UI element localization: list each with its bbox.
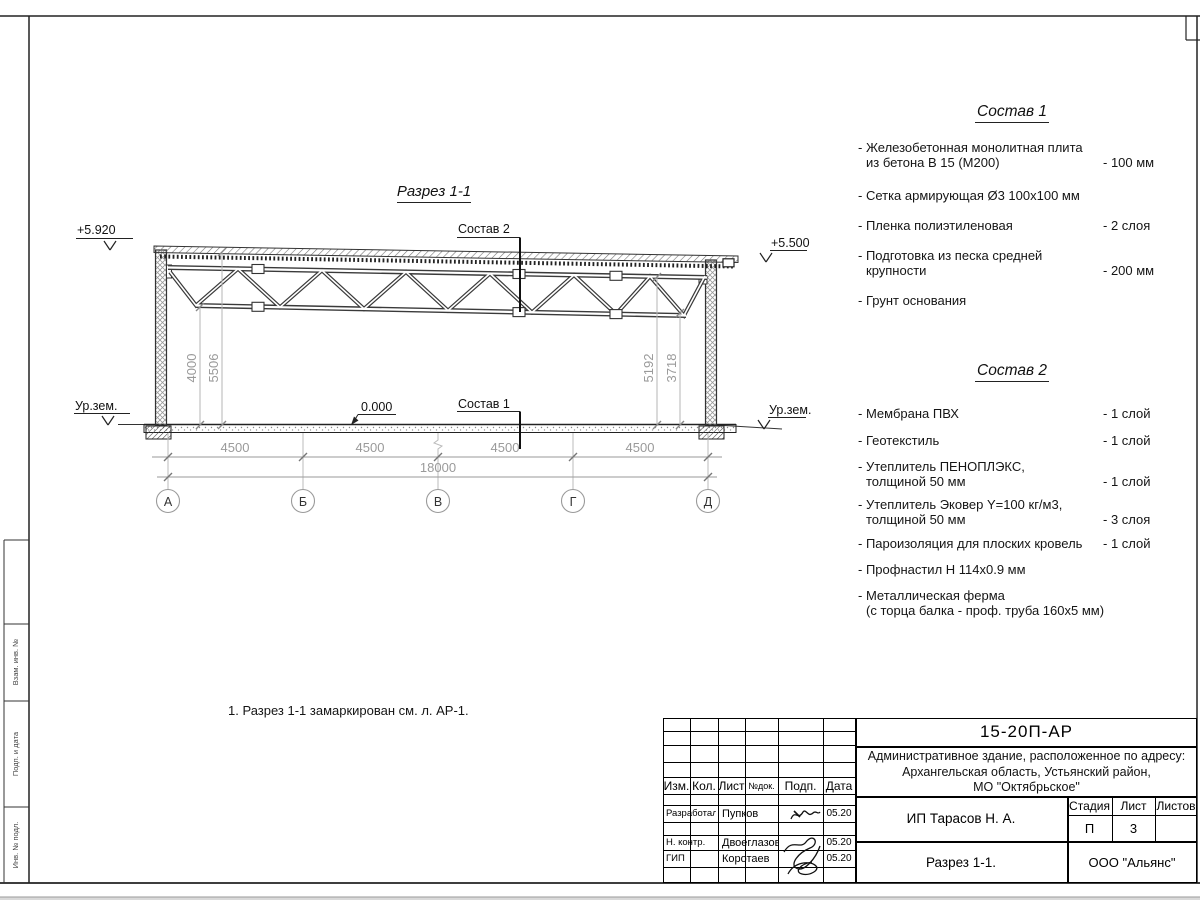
tb-col-ndok: №док. (745, 777, 778, 794)
roof-end-beam (723, 259, 734, 267)
axis-label: А (164, 495, 173, 509)
axis-label: Д (704, 495, 713, 509)
axis-label: Г (570, 495, 577, 509)
drawing-note: 1. Разрез 1-1 замаркирован см. л. АР-1. (228, 703, 469, 718)
corner-box (1186, 16, 1200, 40)
margin-label: Взам. инв. № (11, 639, 20, 685)
tb-name: Коротаев (722, 850, 778, 867)
tb-col-data: Дата (823, 777, 855, 794)
list-item: - Сетка армирующая Ø3 100х100 мм (846, 188, 1178, 203)
project-address: Административное здание, расположенное п… (856, 749, 1197, 796)
axis-bubbles: А Б В Г Д (157, 490, 720, 513)
list-item: - Пленка полиэтиленовая - 2 слоя (846, 218, 1178, 233)
dim-label-total: 18000 (420, 460, 456, 475)
tb-date: 05.20 (823, 850, 855, 867)
axis-label: В (434, 495, 442, 509)
sostav2-title: Состав 2 (846, 362, 1178, 380)
level-arrow-icon (760, 253, 772, 262)
truss (168, 265, 707, 319)
tb-date: 05.20 (823, 805, 855, 822)
stage-label: Стадия (1067, 796, 1112, 815)
level-arrow-icon (102, 416, 114, 425)
elevation-right: +5.500 (760, 236, 810, 262)
list-item: - Пароизоляция для плоских кровель - 1 с… (846, 536, 1178, 551)
ground-label: Ур.зем. (75, 399, 117, 413)
tb-name: Двоеглазов (722, 835, 778, 850)
wall-left (156, 250, 167, 425)
list-item: - Металлическая ферма (с торца балка - п… (846, 588, 1178, 618)
list-item: - Утеплитель Эковер Y=100 кг/м3, толщино… (846, 497, 1178, 527)
sheet-title: Разрез 1-1. (856, 841, 1066, 883)
client-name: ИП Тарасов Н. А. (856, 796, 1066, 841)
elevation-label: +5.500 (771, 236, 810, 250)
dim-label: 4500 (626, 440, 655, 455)
footing-right (699, 426, 724, 439)
tb-col-list: Лист (718, 777, 745, 794)
section-view: Состав 2 Состав 1 0.000 +5.920 (74, 222, 811, 513)
list-item: - Подготовка из песка средней крупности … (846, 248, 1178, 278)
level-arrow-icon (104, 241, 116, 250)
leader-label: Состав 1 (458, 397, 510, 411)
ground-label: Ур.зем. (769, 403, 811, 417)
axis-label: Б (299, 495, 307, 509)
ground-level-left: Ур.зем. (74, 399, 130, 425)
tb-col-podp: Подп. (778, 777, 823, 794)
tb-date: 05.20 (823, 835, 855, 850)
dim-label: 4500 (221, 440, 250, 455)
dim-label: 5506 (206, 354, 221, 383)
floor-slab (144, 425, 736, 433)
stage-value: П (1067, 815, 1112, 841)
footing-left (146, 426, 171, 439)
tb-role: Разработал (666, 805, 716, 822)
sheet-label: Лист (1112, 796, 1155, 815)
elevation-label: +5.920 (77, 223, 116, 237)
tb-name: Пупков (722, 805, 777, 822)
ground-level-right: Ур.зем. (758, 403, 811, 429)
tb-col-izm: Изм. (663, 777, 690, 794)
dim-label: 4500 (491, 440, 520, 455)
tb-col-kol: Кол. (690, 777, 718, 794)
margin-label: Подп. и дата (11, 731, 20, 776)
dim-label: 3718 (664, 354, 679, 383)
doc-number: 15-20П-АР (856, 718, 1197, 746)
list-item: - Железобетонная монолитная плита из бет… (846, 140, 1178, 170)
tb-role: Н. контр. (666, 835, 716, 850)
sheet-value: 3 (1112, 815, 1155, 841)
leader-label: Состав 2 (458, 222, 510, 236)
zero-label: 0.000 (361, 400, 392, 414)
list-item: - Геотекстиль - 1 слой (846, 433, 1178, 448)
signature (788, 806, 822, 824)
list-item: - Мембрана ПВХ - 1 слой (846, 406, 1178, 421)
company-name: ООО "Альянс" (1067, 841, 1197, 883)
sostav1-title: Состав 1 (846, 103, 1178, 121)
list-item: - Профнастил Н 114х0.9 мм (846, 562, 1178, 577)
zero-level-mark: 0.000 (351, 400, 396, 425)
margin-labels: Взам. инв. № Подп. и дата Инв. № подл. (11, 639, 20, 869)
sheets-label: Листов (1155, 796, 1197, 815)
margin-label: Инв. № подл. (11, 822, 20, 869)
section-title: Разрез 1-1 (388, 183, 480, 200)
list-item: - Утеплитель ПЕНОПЛЭКС, толщиной 50 мм -… (846, 459, 1178, 489)
drawing-sheet: Взам. инв. № Подп. и дата Инв. № подл. (0, 0, 1200, 900)
signature (780, 834, 826, 878)
dim-label: 4000 (184, 354, 199, 383)
elevation-left: +5.920 (76, 223, 133, 250)
leader-sostav-2: Состав 2 (457, 222, 520, 312)
composition-lists: Состав 1 - Железобетонная монолитная пли… (846, 0, 1178, 640)
dim-label: 5192 (641, 354, 656, 383)
tb-role: ГИП (666, 850, 716, 867)
list-item: - Грунт основания (846, 293, 1178, 308)
span-dimensions: 4500 4500 4500 4500 18000 (152, 433, 722, 490)
wall-right (706, 260, 717, 425)
dim-label: 4500 (356, 440, 385, 455)
